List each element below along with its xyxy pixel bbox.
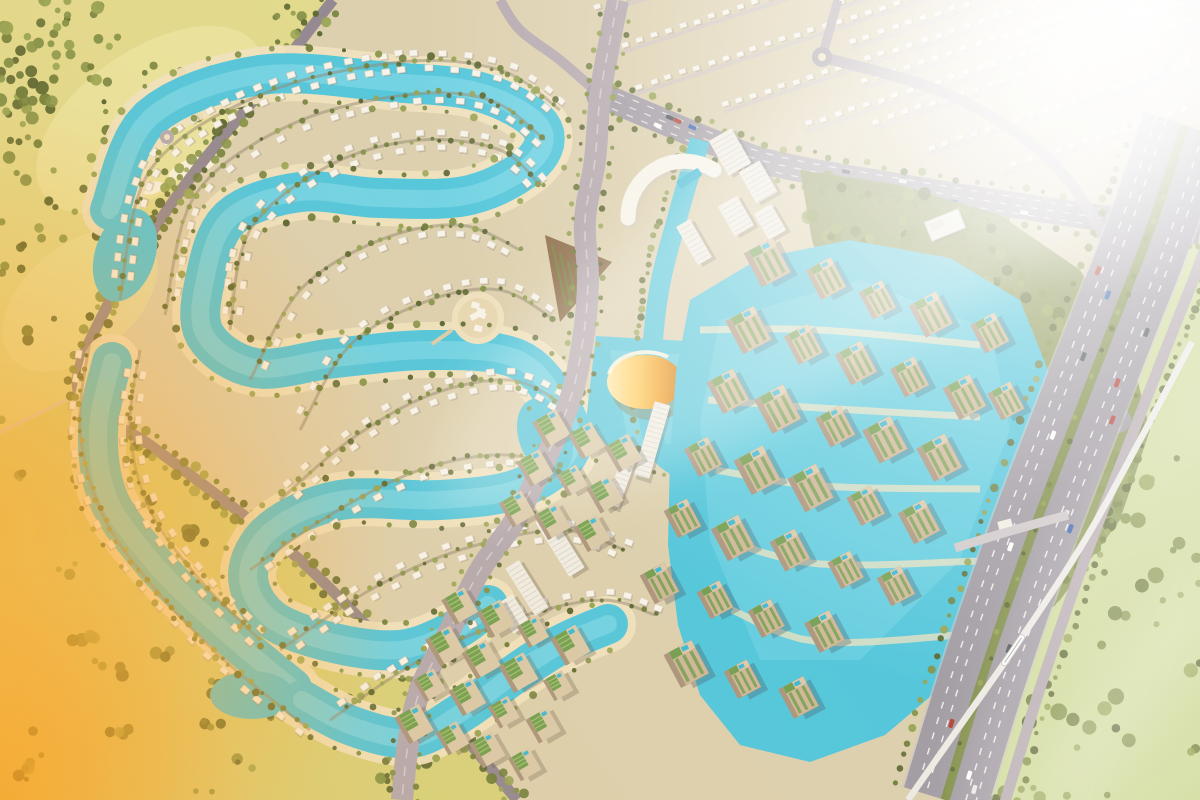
masterplan-aerial-image [0, 0, 1200, 800]
aerial-rendering-canvas [0, 0, 1200, 800]
sun-flare [0, 0, 1200, 800]
warm-overlay [0, 0, 1200, 800]
